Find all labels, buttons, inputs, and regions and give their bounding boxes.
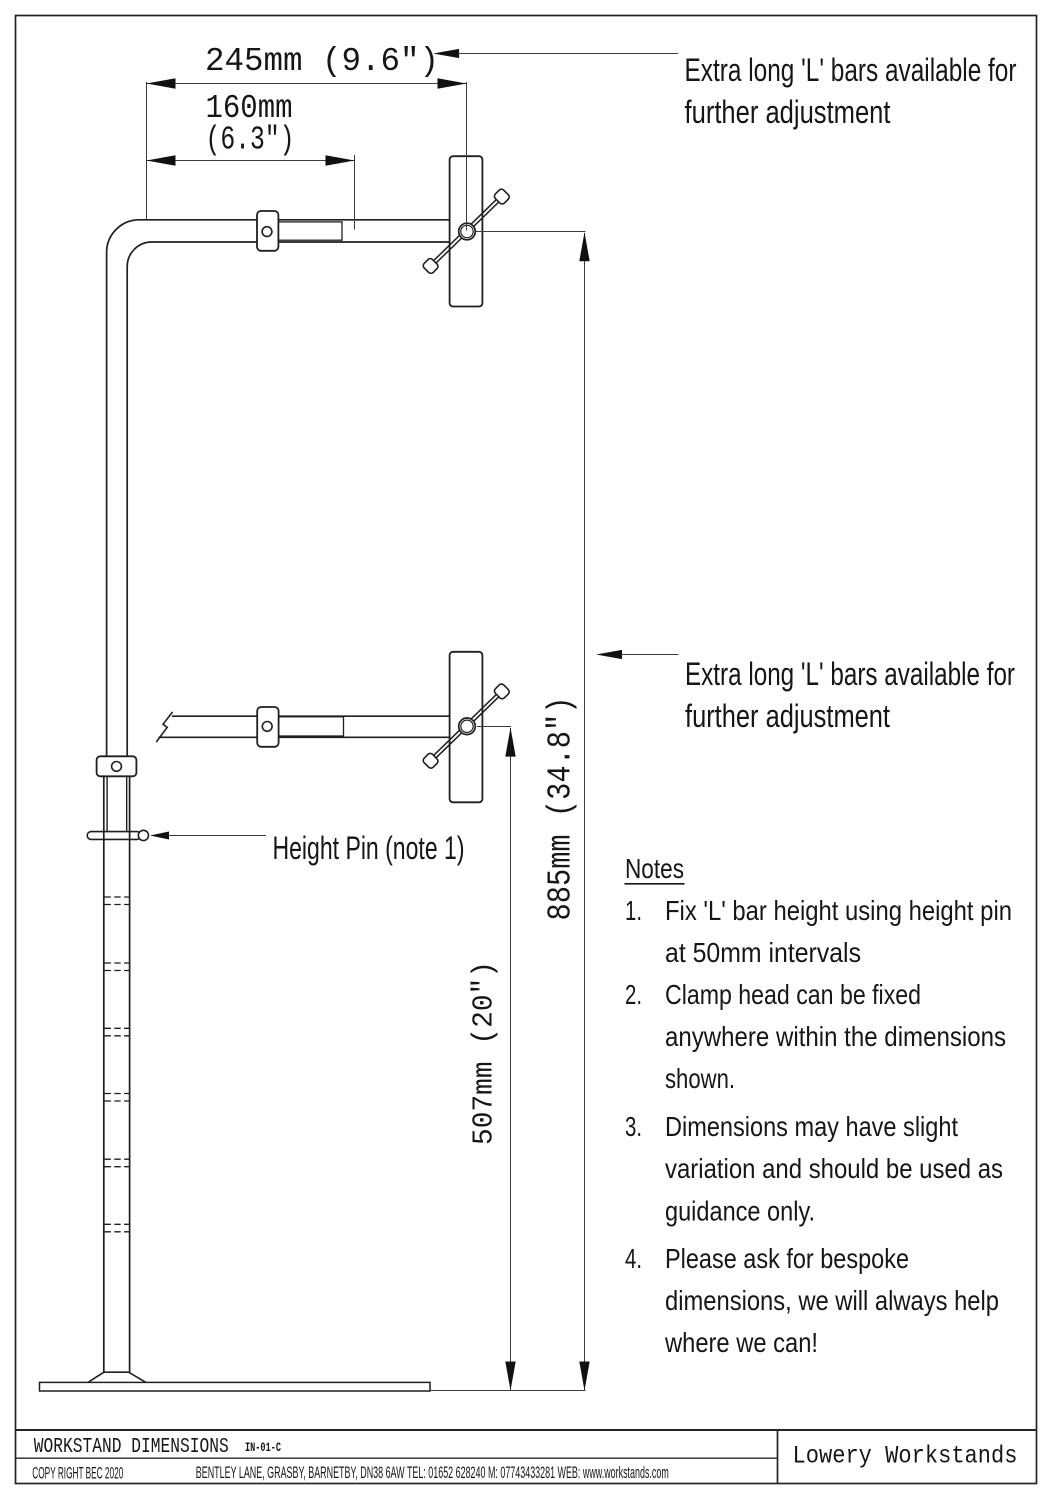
svg-text:WORKSTAND DIMENSIONS: WORKSTAND DIMENSIONS bbox=[34, 1436, 229, 1459]
svg-text:507mm (20"): 507mm (20") bbox=[468, 961, 501, 1145]
svg-text:(6.3"): (6.3") bbox=[206, 122, 295, 159]
svg-text:Extra long 'L' bars available: Extra long 'L' bars available for bbox=[685, 656, 1015, 692]
svg-text:Clamp head can be fixed: Clamp head can be fixed bbox=[665, 979, 921, 1010]
svg-text:Height Pin (note 1): Height Pin (note 1) bbox=[273, 830, 465, 866]
svg-text:BENTLEY LANE, GRASBY, BARNETBY: BENTLEY LANE, GRASBY, BARNETBY, DN38 6AW… bbox=[196, 1463, 669, 1482]
svg-text:3.: 3. bbox=[625, 1111, 642, 1142]
svg-text:Please ask for bespoke: Please ask for bespoke bbox=[665, 1243, 909, 1274]
svg-text:shown.: shown. bbox=[665, 1063, 735, 1094]
svg-text:at 50mm intervals: at 50mm intervals bbox=[665, 937, 861, 968]
svg-text:Fix 'L' bar height using heigh: Fix 'L' bar height using height pin bbox=[665, 895, 1012, 926]
svg-text:further adjustment: further adjustment bbox=[685, 94, 891, 130]
svg-text:Dimensions may have slight: Dimensions may have slight bbox=[665, 1111, 958, 1142]
svg-text:4.: 4. bbox=[625, 1243, 642, 1274]
svg-text:1.: 1. bbox=[625, 895, 642, 926]
svg-text:Lowery Workstands: Lowery Workstands bbox=[793, 1442, 1018, 1471]
svg-text:variation and should be used a: variation and should be used as bbox=[665, 1153, 1003, 1184]
svg-text:885mm (34.8"): 885mm (34.8") bbox=[543, 697, 580, 921]
svg-text:further adjustment: further adjustment bbox=[685, 698, 890, 734]
svg-text:2.: 2. bbox=[625, 979, 642, 1010]
svg-text:guidance only.: guidance only. bbox=[665, 1196, 815, 1227]
svg-text:dimensions, we will always hel: dimensions, we will always help bbox=[665, 1285, 999, 1316]
svg-text:Extra long 'L' bars available: Extra long 'L' bars available for bbox=[685, 52, 1017, 88]
svg-text:245mm (9.6"): 245mm (9.6") bbox=[205, 43, 439, 80]
svg-text:IN-01-C: IN-01-C bbox=[245, 1441, 281, 1455]
svg-text:Notes: Notes bbox=[625, 853, 684, 884]
svg-text:COPY RIGHT BEC 2020: COPY RIGHT BEC 2020 bbox=[32, 1464, 123, 1483]
svg-text:where we can!: where we can! bbox=[664, 1327, 818, 1358]
svg-text:anywhere within the dimensions: anywhere within the dimensions bbox=[665, 1021, 1006, 1052]
